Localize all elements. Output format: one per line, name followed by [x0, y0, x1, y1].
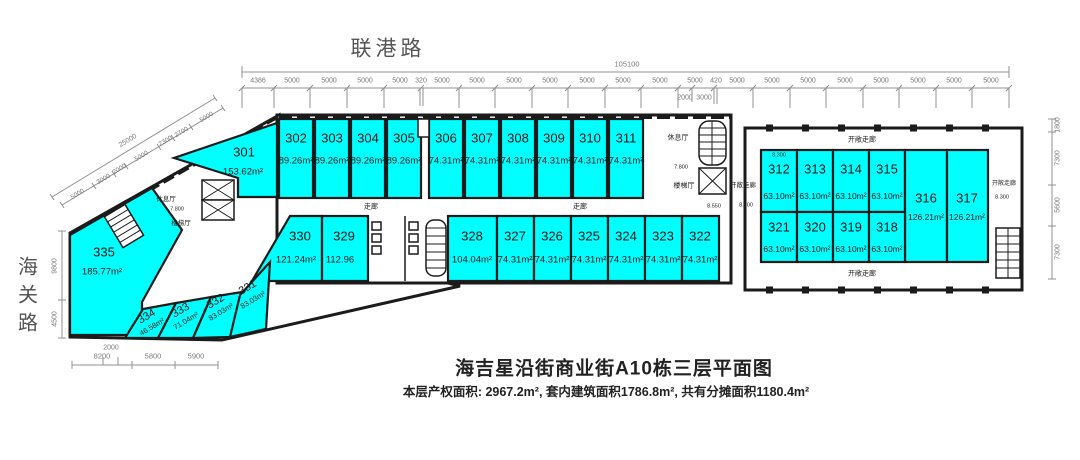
wc-stall: [372, 222, 381, 230]
room-323: [645, 216, 682, 281]
dim-top-total: 105100: [614, 60, 639, 68]
dim-label: 3000: [696, 95, 712, 102]
dim-label: 5000: [983, 78, 999, 85]
unit-number: 317: [956, 192, 978, 205]
dim-label: 5600: [1055, 197, 1062, 213]
room-312: [761, 150, 797, 212]
dim-label: 420: [710, 78, 722, 85]
unit-number: 319: [840, 221, 862, 234]
unit-number: 304: [357, 132, 379, 145]
dim-label: 5000: [729, 78, 745, 85]
wc-stall: [372, 246, 381, 254]
level-label: 8.300: [739, 203, 753, 209]
unit-area: 89.26m²: [351, 156, 386, 166]
unit-number: 322: [689, 230, 711, 243]
unit-area: 74.31m²: [535, 255, 570, 265]
drawing-subtitle: 本层产权面积: 2967.2m², 套内建筑面积1786.8m², 共有分摊面积…: [403, 386, 809, 399]
level-label: 8.550: [707, 204, 721, 210]
unit-area: 63.10m²: [799, 192, 830, 201]
unit-area: 63.10m²: [871, 192, 902, 201]
dim-label: 5000: [910, 78, 926, 85]
unit-number: 312: [768, 163, 790, 176]
unit-area: 104.04m²: [452, 255, 492, 265]
room-322: [682, 216, 719, 281]
dim-label: 5000: [873, 78, 889, 85]
unit-area: 74.31m²: [498, 255, 533, 265]
dim-label: 7300: [1055, 150, 1062, 166]
level-label: 7.800: [170, 207, 184, 213]
unit-number: 311: [616, 132, 637, 145]
unit-number: 303: [321, 132, 343, 145]
room-329: [322, 216, 368, 281]
unit-area: 74.31m²: [609, 156, 644, 166]
road-label-left: 海关路: [12, 256, 41, 340]
unit-area: 153.62m²: [223, 167, 263, 177]
open-corridor-label: 开敞走廊: [730, 183, 756, 190]
room-328: [448, 216, 497, 281]
unit-number: 323: [652, 230, 674, 243]
unit-number: 321: [768, 221, 790, 234]
dim-label: 5000: [434, 78, 450, 85]
unit-area: 74.31m²: [429, 156, 464, 166]
dim-label: 5900: [188, 352, 205, 360]
dim-label: 5000: [542, 78, 558, 85]
corridor-label: 走廊: [573, 204, 587, 211]
unit-number: 316: [915, 192, 937, 205]
wc-stall: [409, 246, 418, 254]
dim-label: 5000: [392, 78, 408, 85]
room-326: [534, 216, 571, 281]
unit-number: 301: [233, 146, 255, 159]
unit-area: 63.10m²: [763, 192, 794, 201]
unit-number: 313: [804, 163, 826, 176]
unit-number: 309: [543, 132, 565, 145]
unit-area: 89.26m²: [387, 156, 422, 166]
dim-label: 4500: [52, 311, 59, 327]
dim-label: 5000: [615, 78, 631, 85]
room-316: [905, 150, 947, 262]
unit-area: 63.10m²: [763, 245, 794, 254]
dim-label: 2000: [677, 95, 693, 102]
dim-label: 5000: [687, 78, 703, 85]
dim-label: 8200: [94, 352, 111, 360]
unit-number: 320: [804, 221, 826, 234]
unit-number: 328: [461, 230, 483, 243]
dim-label: 5000: [946, 78, 962, 85]
unit-area: 74.31m²: [646, 255, 681, 265]
dim-label: 9800: [52, 258, 59, 274]
unit-area: 185.77m²: [82, 267, 122, 277]
unit-number: 327: [504, 230, 526, 243]
room-325: [571, 216, 608, 281]
unit-number: 310: [579, 132, 601, 145]
wc-stall: [409, 222, 418, 230]
drawing-title: 海吉星沿街商业街A10栋三层平面图: [455, 360, 773, 379]
unit-number: 318: [876, 221, 898, 234]
unit-area: 121.24m²: [276, 255, 316, 265]
shaft-305-306: [418, 119, 429, 137]
level-label: 8.300: [772, 153, 786, 159]
level-label: 7.800: [674, 165, 688, 171]
unit-number: 324: [615, 230, 637, 243]
road-label-top: 联港路: [351, 39, 426, 60]
dim-label: 5000: [837, 78, 853, 85]
unit-area: 74.31m²: [537, 156, 572, 166]
dim-label: 1800: [1055, 117, 1062, 133]
dim-label: 5000: [506, 78, 522, 85]
open-corridor-label: 开敞走廊: [848, 271, 876, 278]
room-317: [947, 150, 988, 262]
unit-number: 305: [393, 132, 415, 145]
unit-number: 330: [289, 230, 311, 243]
unit-number: 335: [93, 246, 115, 259]
unit-number: 307: [471, 132, 493, 145]
room-314: [833, 150, 869, 212]
unit-area: 89.26m²: [279, 156, 314, 166]
room-313: [797, 150, 833, 212]
room-327: [497, 216, 534, 281]
unit-area: 126.21m²: [949, 213, 985, 222]
unit-number: 302: [285, 132, 307, 145]
corridor-label: 走廊: [364, 204, 378, 211]
unit-area: 63.10m²: [835, 245, 866, 254]
unit-area: 63.10m²: [871, 245, 902, 254]
dim-label: 5000: [469, 78, 485, 85]
wc-stall: [372, 234, 381, 242]
dim-label: 5800: [145, 352, 162, 360]
dim-label: 2000: [103, 345, 119, 352]
unit-number: 306: [435, 132, 457, 145]
open-corridor-label: 开敞走廊: [992, 181, 1016, 187]
unit-area: 63.10m²: [799, 245, 830, 254]
unit-area: 126.21m²: [908, 213, 944, 222]
wc-stall: [409, 234, 418, 242]
dim-label: 5000: [764, 78, 780, 85]
dim-label: 7300: [1055, 244, 1062, 260]
unit-area: 74.31m²: [465, 156, 500, 166]
unit-area: 74.31m²: [609, 255, 644, 265]
unit-area: 74.31m²: [572, 255, 607, 265]
unit-number: 329: [333, 230, 355, 243]
stair-hall-label: 楼梯厅: [171, 221, 191, 228]
unit-area: 74.31m²: [683, 255, 718, 265]
stair-hall-label: 楼梯厅: [674, 183, 695, 190]
floor-plan-drawing: 联港路 海关路 105100 4386 5000 5000 5000 5000 …: [0, 0, 1080, 460]
dim-label: 320: [415, 78, 427, 85]
unit-number: 315: [876, 163, 898, 176]
unit-area: 74.31m²: [501, 156, 536, 166]
dim-label: 5000: [800, 78, 816, 85]
dim-label: 5000: [321, 78, 337, 85]
unit-number: 314: [840, 163, 862, 176]
dim-label: 4386: [250, 78, 266, 85]
unit-area: 74.31m²: [573, 156, 608, 166]
room-324: [608, 216, 645, 281]
lounge-label: 休息厅: [668, 135, 689, 142]
dim-label: 5000: [284, 78, 300, 85]
dim-label: 5000: [357, 78, 373, 85]
unit-number: 325: [578, 230, 600, 243]
room-315: [869, 150, 905, 212]
unit-area: 112.96: [326, 255, 354, 265]
unit-area: 63.10m²: [835, 192, 866, 201]
dim-label: 5000: [579, 78, 595, 85]
level-label: 8.300: [995, 195, 1009, 201]
unit-number: 308: [507, 132, 529, 145]
unit-number: 326: [541, 230, 563, 243]
open-corridor-label: 开敞走廊: [848, 137, 876, 144]
lounge-label: 休息厅: [156, 197, 176, 204]
dim-label: 5000: [652, 78, 668, 85]
unit-area: 89.26m²: [315, 156, 350, 166]
